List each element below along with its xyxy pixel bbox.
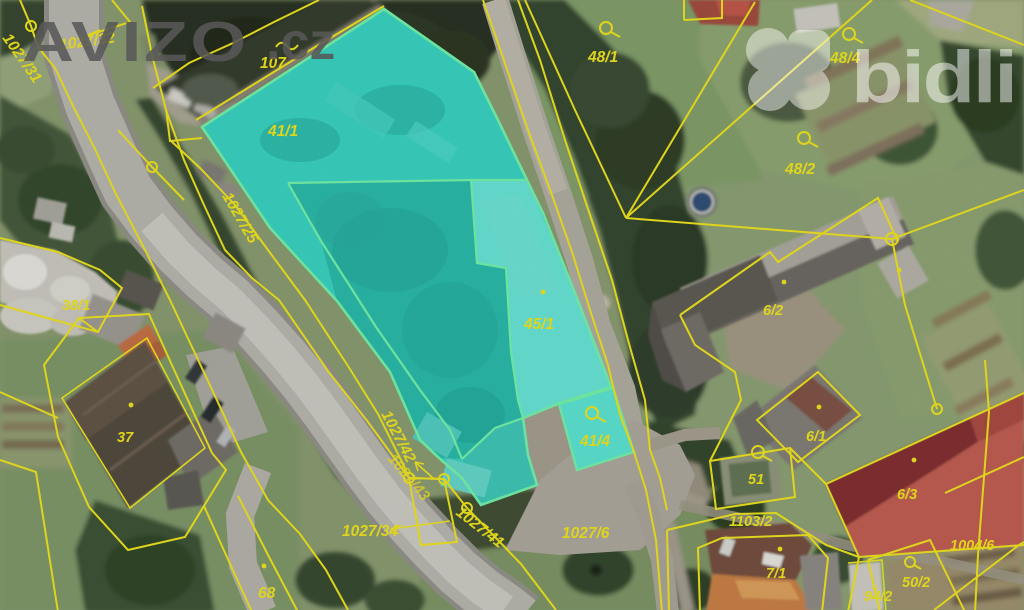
svg-text:bidli: bidli <box>851 36 1016 118</box>
svg-text:AVIZO: AVIZO <box>22 9 249 73</box>
svg-text:.cz: .cz <box>266 13 335 71</box>
